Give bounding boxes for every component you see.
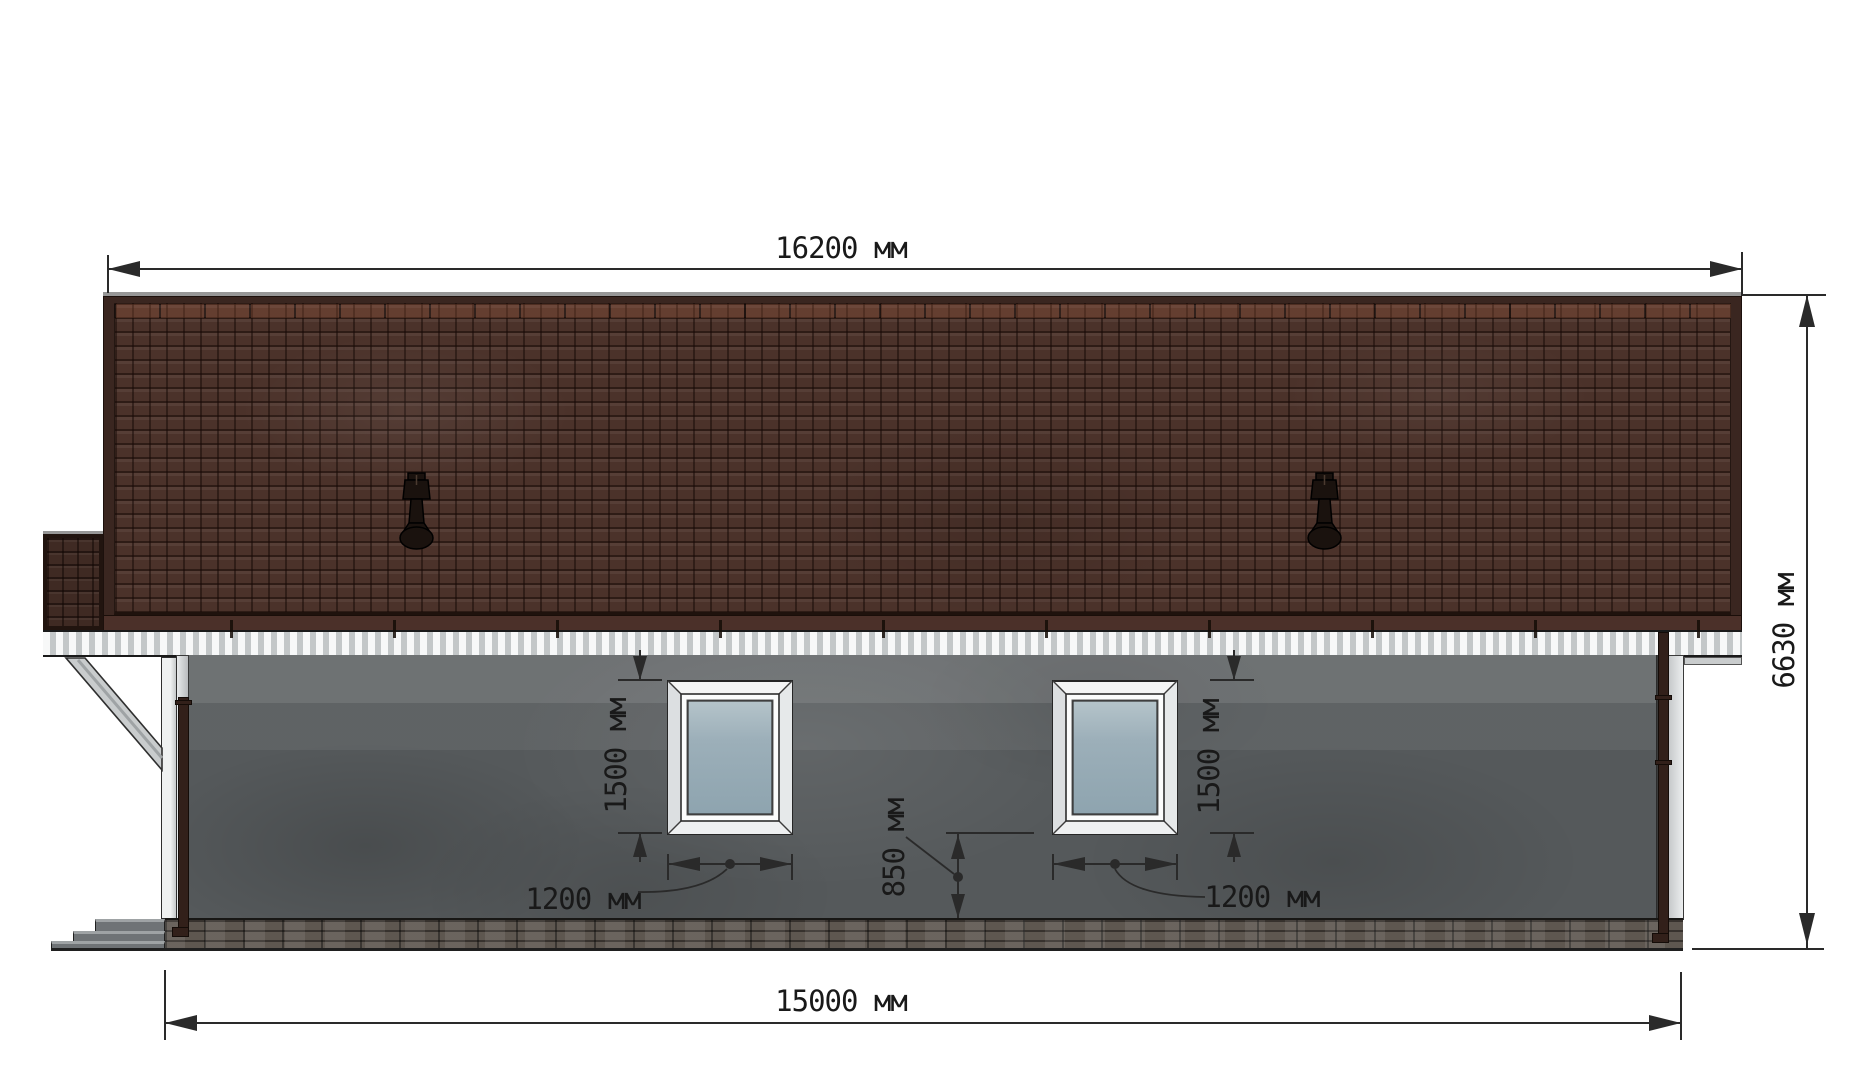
label-right-window-height: 1500 мм (1192, 699, 1226, 814)
elevation-drawing: 16200 мм 15000 мм 6630 мм 1500 мм 1200 м… (0, 0, 1874, 1080)
label-left-window-height: 1500 мм (599, 698, 633, 813)
label-overall-height: 6630 мм (1767, 573, 1801, 688)
label-sill-height: 850 мм (877, 799, 911, 898)
label-foundation-length: 15000 мм (775, 984, 907, 1018)
dim-left-window-width (638, 854, 792, 892)
label-roof-length: 16200 мм (775, 231, 907, 265)
dim-sill-height (906, 833, 1034, 918)
dimension-lines (0, 0, 1874, 1080)
label-right-window-width: 1200 мм (1204, 880, 1319, 914)
dim-roof-length (108, 252, 1742, 296)
dim-foundation-length (165, 970, 1681, 1040)
label-left-window-width: 1200 мм (525, 882, 640, 916)
dim-right-window-width (1053, 854, 1205, 897)
dim-overall-height (1692, 295, 1826, 949)
